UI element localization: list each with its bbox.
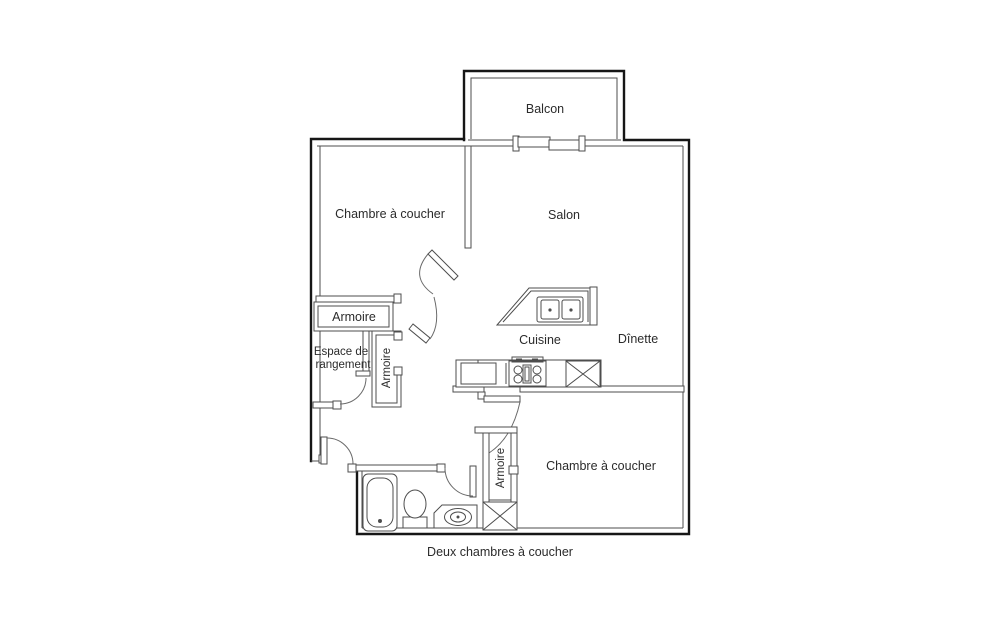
bedroom1-label: Chambre à coucher [335, 207, 445, 221]
closet-x-box-icon [483, 502, 517, 530]
kitchen-counter [456, 357, 601, 387]
bedroom1-salon-wall [465, 146, 471, 248]
double-sink-icon [537, 297, 583, 322]
kitchen-label: Cuisine [519, 333, 561, 347]
stove-icon [509, 357, 546, 386]
bedroom1-door [420, 250, 458, 294]
entry-door [319, 437, 356, 472]
bathroom [356, 464, 477, 531]
storage-label-line1: Espace de [314, 346, 368, 358]
kitchen-island [497, 287, 597, 325]
bathtub-icon [363, 474, 397, 531]
balcony-label: Balcon [526, 102, 564, 116]
closet-hall-side-label: Armoire [381, 348, 393, 388]
storage-label-line2: rangement [316, 359, 372, 371]
bedroom2-label: Chambre à coucher [546, 459, 656, 473]
living-room-label: Salon [548, 208, 580, 222]
closet-hall-top-label: Armoire [332, 310, 376, 324]
vanity-sink-icon [434, 505, 477, 528]
toilet-icon [403, 490, 427, 528]
plan-caption: Deux chambres à coucher [427, 545, 573, 559]
closet-bedroom2-label: Armoire [495, 448, 507, 488]
floorplan-page: Balcon Chambre à coucher Salon Armoire E… [0, 0, 1000, 640]
floorplan-drawing: Balcon Chambre à coucher Salon Armoire E… [0, 0, 1000, 640]
balcony-sliding-door [513, 136, 585, 151]
dinette-label: Dînette [618, 332, 658, 346]
hall-door [409, 297, 437, 343]
